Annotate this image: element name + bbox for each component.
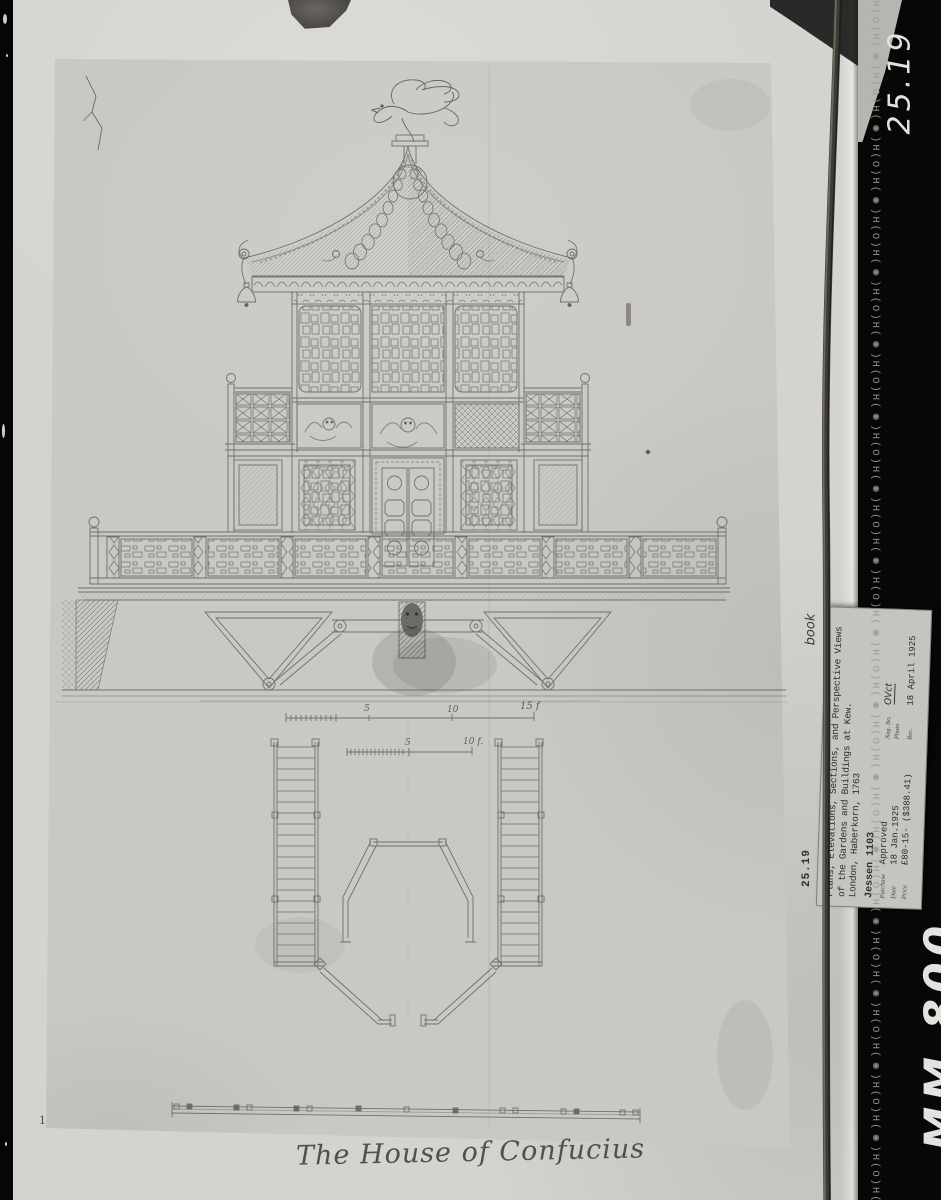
- bookmark-cord: [0, 0, 941, 1200]
- archival-photograph: 5 10 15 f 5 10 f.: [0, 0, 941, 1200]
